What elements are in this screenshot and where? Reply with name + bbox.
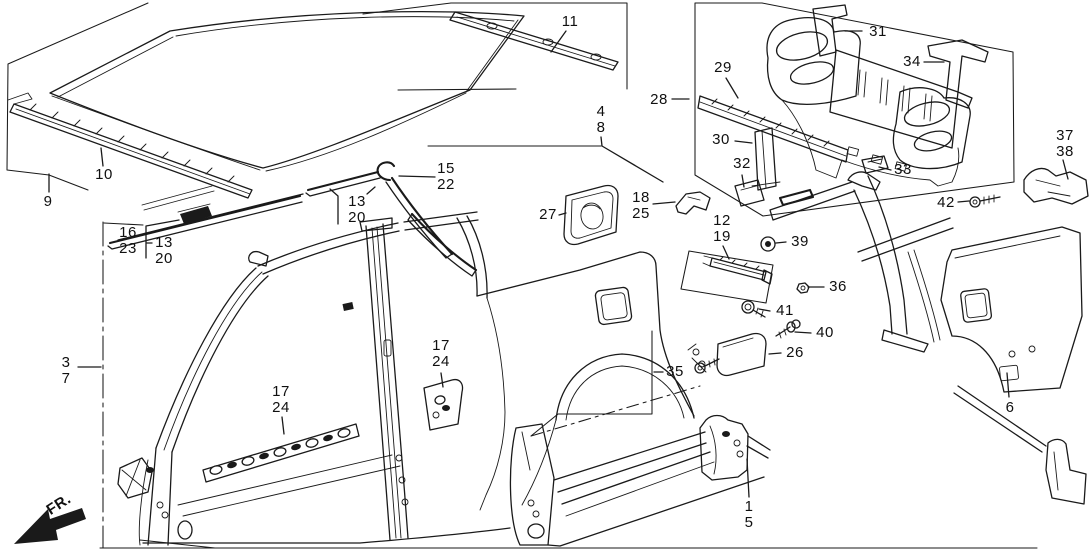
callout-part-29[interactable]: 29	[714, 60, 732, 76]
callout-part-36[interactable]: 36	[829, 279, 847, 295]
fr-direction-indicator: FR.	[6, 488, 106, 552]
callout-part-33[interactable]: 33	[894, 162, 912, 178]
callout-part-11[interactable]: 11	[562, 14, 579, 30]
callout-layer: 9101148282931343032333738421219182527152…	[0, 0, 1090, 554]
callout-part-12-19[interactable]: 1219	[713, 213, 731, 245]
callout-part-35[interactable]: 35	[666, 364, 684, 380]
callout-part-4-8[interactable]: 48	[597, 104, 606, 136]
callout-part-13-20-left[interactable]: 1320	[155, 235, 173, 267]
callout-part-18-25[interactable]: 1825	[632, 190, 650, 222]
callout-part-40[interactable]: 40	[816, 325, 834, 341]
callout-part-26[interactable]: 26	[786, 345, 804, 361]
callout-part-34[interactable]: 34	[903, 54, 921, 70]
callout-part-39[interactable]: 39	[791, 234, 809, 250]
callout-part-27[interactable]: 27	[539, 207, 557, 223]
callout-part-30[interactable]: 30	[712, 132, 730, 148]
callout-part-42[interactable]: 42	[937, 195, 955, 211]
callout-part-9[interactable]: 9	[44, 194, 53, 210]
callout-part-41[interactable]: 41	[776, 303, 794, 319]
callout-part-15-22[interactable]: 1522	[437, 161, 455, 193]
callout-part-16-23[interactable]: 1623	[119, 225, 137, 257]
callout-part-31[interactable]: 31	[869, 24, 887, 40]
callout-part-32[interactable]: 32	[733, 156, 751, 172]
body-parts-exploded-diagram: 9101148282931343032333738421219182527152…	[0, 0, 1090, 554]
callout-part-17-24-a[interactable]: 1724	[272, 384, 290, 416]
callout-part-10[interactable]: 10	[95, 167, 113, 183]
callout-part-3-7[interactable]: 37	[62, 355, 71, 387]
callout-part-37-38[interactable]: 3738	[1056, 128, 1074, 160]
callout-part-1-5[interactable]: 15	[745, 499, 754, 531]
callout-part-28[interactable]: 28	[650, 92, 668, 108]
callout-part-6[interactable]: 6	[1006, 400, 1015, 416]
callout-part-13-20-center[interactable]: 1320	[348, 194, 366, 226]
callout-part-17-24-b[interactable]: 1724	[432, 338, 450, 370]
